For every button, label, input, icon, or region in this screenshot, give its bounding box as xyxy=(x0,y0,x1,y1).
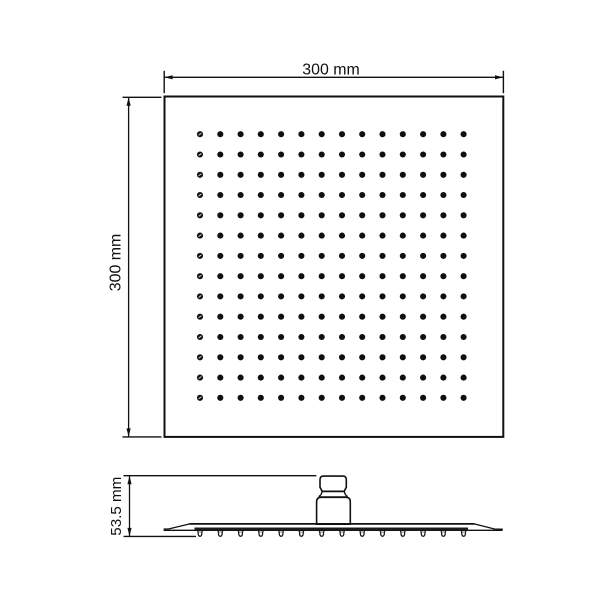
svg-text:300 mm: 300 mm xyxy=(108,234,125,291)
svg-text:300 mm: 300 mm xyxy=(302,62,359,79)
svg-text:53.5 mm: 53.5 mm xyxy=(108,477,125,536)
